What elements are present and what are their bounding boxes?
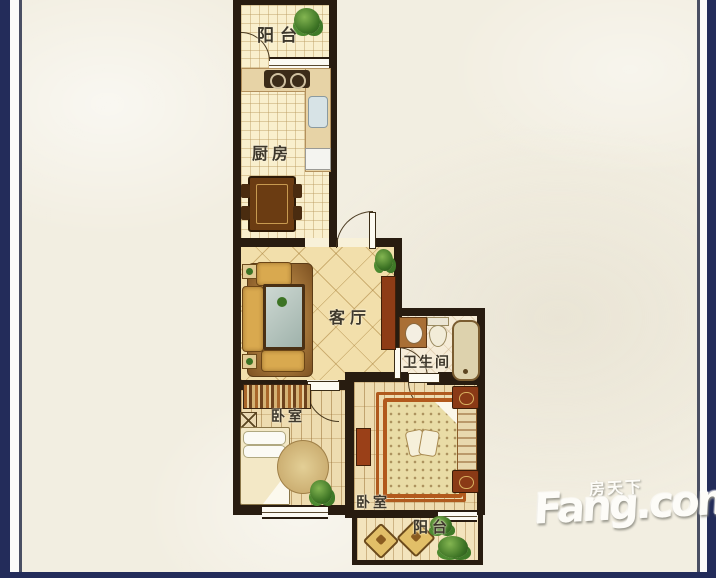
room-label-balcony-bottom: 阳台 xyxy=(413,516,451,537)
wall-kitchen-bottom xyxy=(241,238,305,247)
bathtub-drain-icon xyxy=(463,369,468,374)
stove xyxy=(264,70,310,88)
wall-bedroom-left-bottom-a xyxy=(233,505,262,515)
entry-door-leaf xyxy=(369,212,376,249)
wall-balcony-bottom xyxy=(352,560,483,565)
room-label-bedroom-left: 卧室 xyxy=(271,406,305,426)
plant-icon xyxy=(246,268,253,275)
wall-balcony-right xyxy=(478,515,483,562)
double-bed xyxy=(383,398,463,498)
wall-balcony-left xyxy=(352,515,357,562)
nightstand xyxy=(452,470,479,493)
dining-chair xyxy=(241,206,250,220)
dining-table-detail xyxy=(256,184,288,224)
coffee-table xyxy=(263,284,305,350)
dining-table xyxy=(248,176,296,232)
nightstand xyxy=(452,386,479,409)
wall-bathroom-top xyxy=(394,308,485,316)
entry-door-arc xyxy=(336,211,373,248)
wall-entry-right xyxy=(372,238,402,247)
wall-between-bedrooms xyxy=(345,372,354,518)
bathtub xyxy=(452,320,480,381)
side-table xyxy=(242,264,257,279)
plant-icon xyxy=(277,297,287,307)
plant-icon xyxy=(375,249,393,271)
dresser xyxy=(356,428,371,466)
plant-icon xyxy=(246,358,253,365)
kitchen-appliance xyxy=(305,148,331,170)
sofa xyxy=(242,286,264,352)
room-label-bedroom-right: 卧室 xyxy=(356,492,390,512)
pillow xyxy=(243,431,286,445)
kitchen-sink xyxy=(308,96,328,128)
chair-cushion xyxy=(375,534,386,545)
plant-icon xyxy=(438,536,468,558)
room-label-balcony-top: 阳台 xyxy=(257,21,303,46)
stove-burner-icon xyxy=(290,73,306,89)
loveseat xyxy=(261,350,305,372)
plant-icon xyxy=(310,480,332,504)
tv-cabinet xyxy=(381,276,396,350)
side-table xyxy=(242,354,257,369)
dining-chair xyxy=(293,206,302,220)
dining-chair xyxy=(293,184,302,198)
washbasin-counter xyxy=(399,317,427,348)
room-label-kitchen: 厨房 xyxy=(252,140,292,164)
headboard xyxy=(457,408,477,472)
dining-chair xyxy=(241,184,250,198)
pillow xyxy=(418,429,440,458)
armchair xyxy=(256,262,292,286)
fang-logo: Fang.com xyxy=(533,474,716,534)
kitchen-doorway xyxy=(305,238,329,247)
room-label-living-room: 客厅 xyxy=(329,304,371,328)
wall-top xyxy=(233,0,337,5)
bedroom-left-window xyxy=(262,505,328,519)
wall-bedroom-left-bottom-b xyxy=(328,505,354,515)
fang-watermark: 房天下 Fang.com xyxy=(533,475,716,540)
bathroom-door-leaf xyxy=(394,347,401,379)
washbasin xyxy=(405,323,423,344)
stove-burner-icon xyxy=(270,73,286,89)
room-label-bathroom: 卫生间 xyxy=(403,352,451,372)
